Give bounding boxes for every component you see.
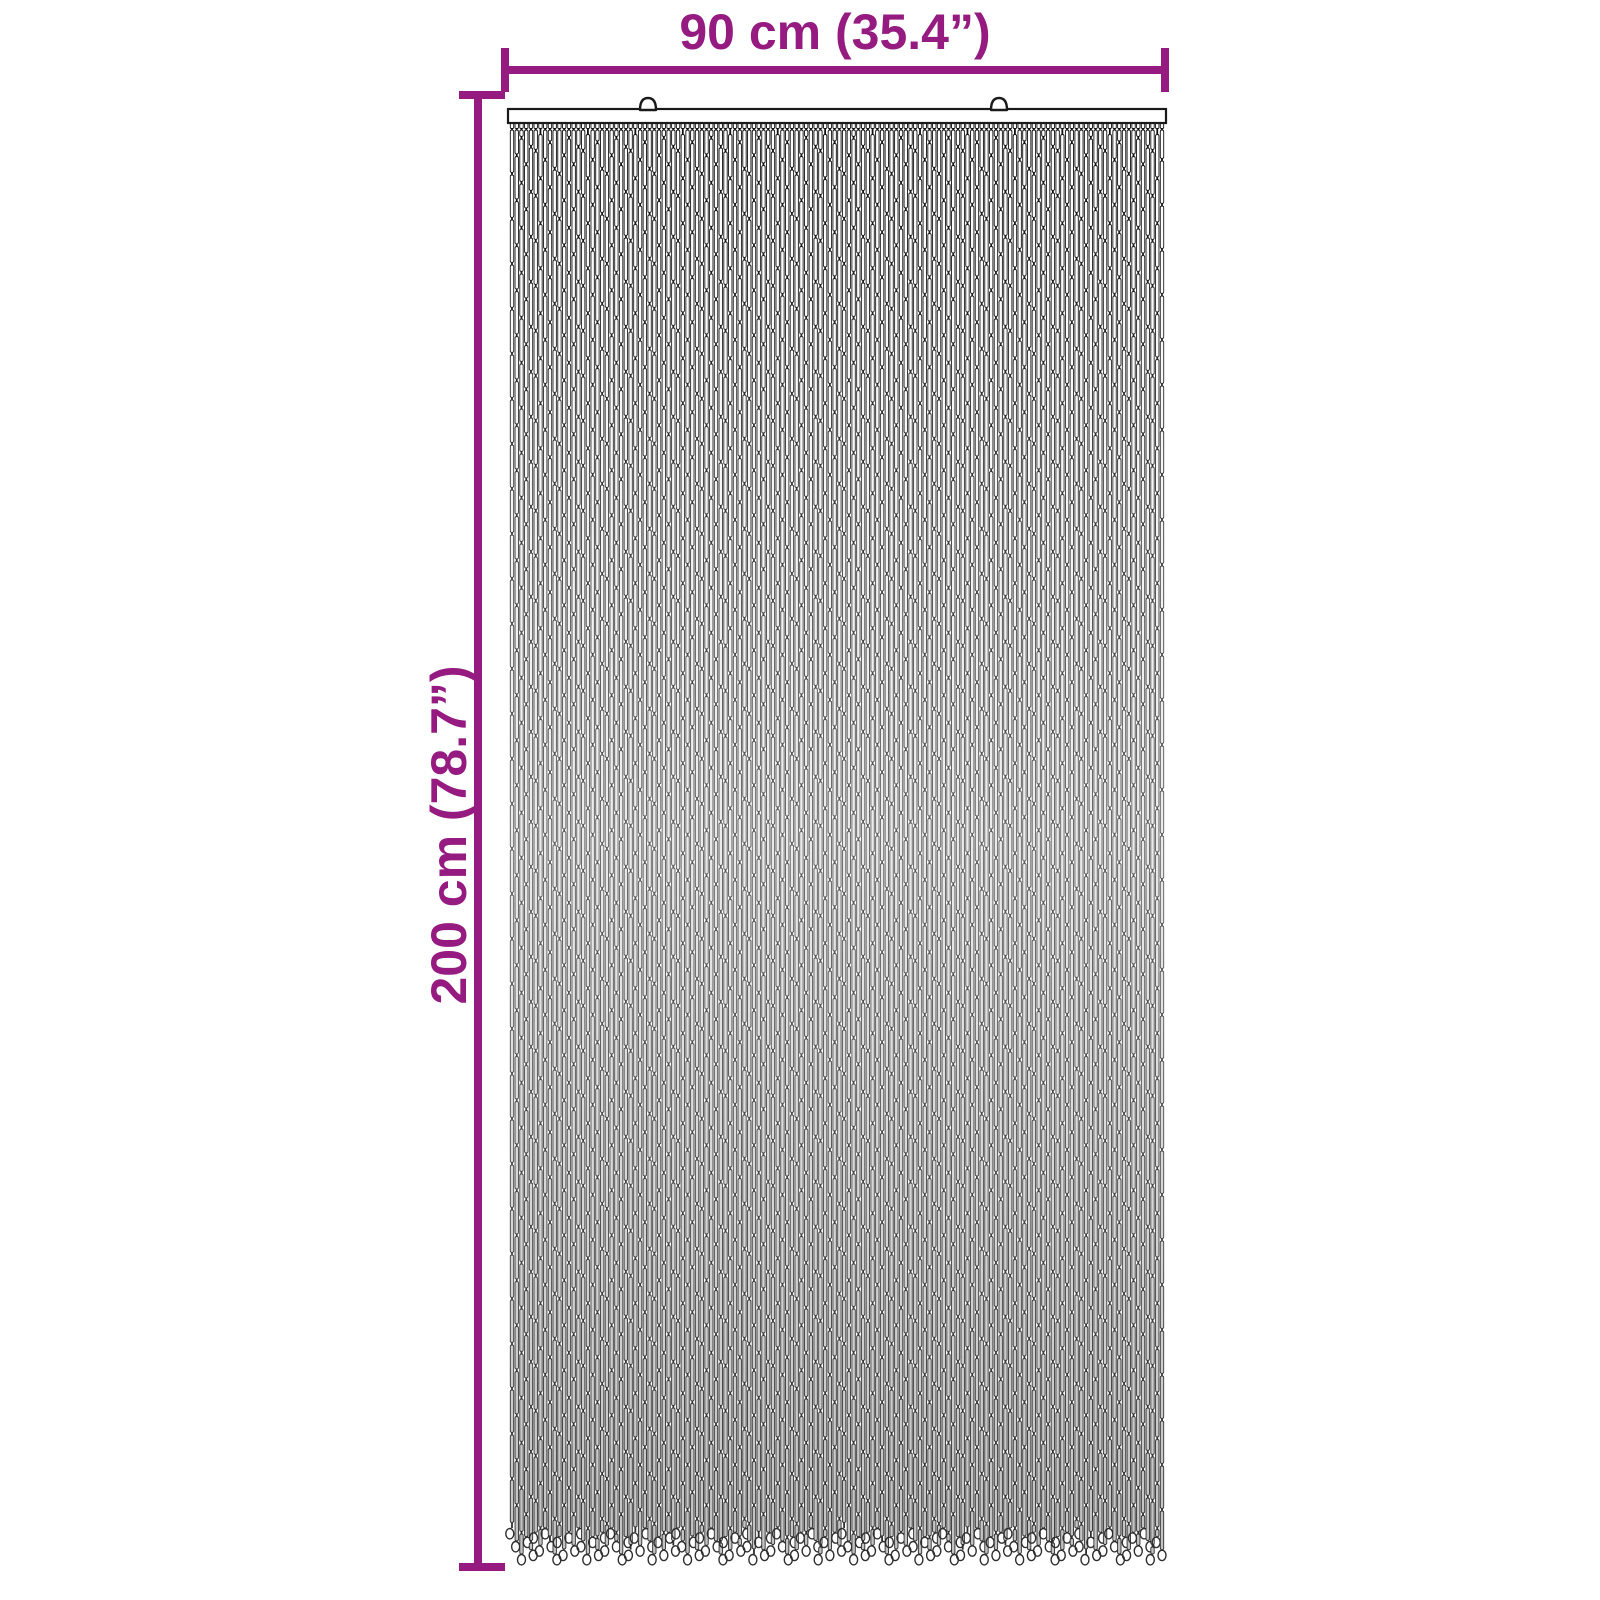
hanging-hook-icon-right — [991, 98, 1007, 110]
product-dimension-diagram: 90 cm (35.4”) 200 cm (78.7”) — [0, 0, 1600, 1600]
curtain-strands — [506, 123, 1166, 1565]
bead-curtain-graphic — [0, 0, 1600, 1600]
curtain-rail — [508, 109, 1166, 123]
hanging-hook-icon-left — [640, 98, 656, 110]
